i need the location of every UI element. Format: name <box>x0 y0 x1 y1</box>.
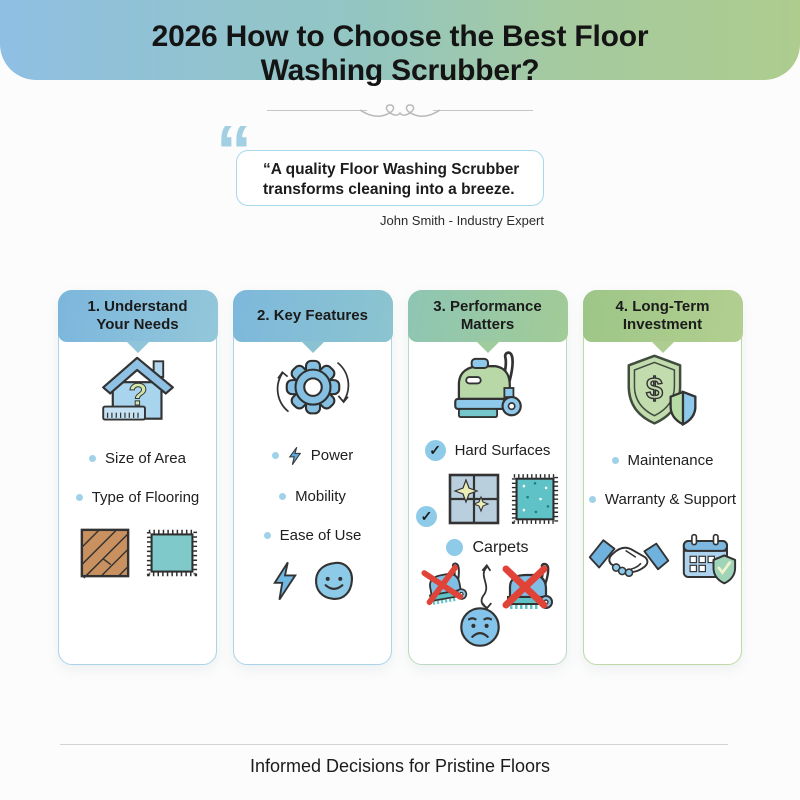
bullet-label: Maintenance <box>628 452 714 469</box>
card3-title-line2: Matters <box>461 316 514 334</box>
check-hard-surfaces: ✓ Hard Surfaces <box>425 440 551 461</box>
card1-title-line2: Your Needs <box>96 316 178 334</box>
card1-body: ? Size of Area Type of Flooring <box>59 342 216 580</box>
quote-line1: “A quality Floor Washing Scrubber <box>263 160 535 180</box>
quote-box: “A quality Floor Washing Scrubber transf… <box>236 150 544 206</box>
calendar-warranty-icon <box>680 532 738 586</box>
carpets-label: Carpets <box>472 539 528 557</box>
smiley-face-icon <box>313 560 355 602</box>
lightning-bolt-small-icon <box>288 446 302 466</box>
bullet-type-of-flooring: Type of Flooring <box>76 489 200 506</box>
bullet-power: Power <box>272 446 354 466</box>
flooring-samples <box>78 526 198 580</box>
card-long-term-investment: 4. Long-Term Investment $ Maintenance <box>583 290 742 665</box>
bullet-dot <box>76 494 83 501</box>
gear-sync-arrows-icon <box>271 352 355 424</box>
bullet-ease-of-use: Ease of Use <box>264 527 362 544</box>
sad-face-wrap <box>458 605 502 654</box>
bullet-dot <box>264 532 271 539</box>
footer-divider <box>60 744 728 745</box>
footer-tagline: Informed Decisions for Pristine Floors <box>0 756 800 777</box>
card1-title-line1: 1. Understand <box>87 298 187 316</box>
divider-line-left <box>267 110 367 111</box>
shield-dollar-icon: $ <box>623 352 703 430</box>
svg-text:?: ? <box>128 376 147 411</box>
bullet-dot <box>279 493 286 500</box>
flourish-ornament-icon <box>358 101 442 127</box>
bullet-size-of-area: Size of Area <box>89 450 186 467</box>
svg-text:$: $ <box>645 371 662 405</box>
card3-title-line1: 3. Performance <box>433 298 541 316</box>
wood-flooring-icon <box>78 526 132 580</box>
divider-line-right <box>433 110 533 111</box>
house-question-ruler-icon: ? <box>98 352 178 428</box>
lightning-bolt-icon <box>271 560 299 602</box>
bullet-dot <box>612 457 619 464</box>
floor-scrubber-machine-icon <box>444 348 532 428</box>
quote-attribution: John Smith - Industry Expert <box>236 213 544 228</box>
page-title-line1: 2026 How to Choose the Best Floor <box>0 20 800 54</box>
quote-line2: transforms cleaning into a breeze. <box>263 180 535 200</box>
card1-header: 1. Understand Your Needs <box>58 290 218 342</box>
circle-bullet-icon <box>446 539 463 556</box>
carpet-swatch-icon <box>511 472 559 526</box>
bullet-mobility: Mobility <box>279 488 346 505</box>
bullet-label: Ease of Use <box>280 527 362 544</box>
carpet-swatch-icon <box>146 528 198 578</box>
card-key-features: 2. Key Features <box>233 290 392 665</box>
card2-title-line1: 2. Key Features <box>257 307 368 325</box>
carpets-label-row: Carpets <box>446 539 528 557</box>
page-title-line2: Washing Scrubber? <box>0 54 800 88</box>
bullet-label: Type of Flooring <box>92 489 200 506</box>
crossed-scrubber-icon <box>498 559 554 613</box>
bullet-dot <box>272 452 279 459</box>
card3-header: 3. Performance Matters <box>408 290 568 342</box>
check-icon: ✓ <box>416 506 437 527</box>
card2-body: Power Mobility Ease of Use <box>234 342 391 602</box>
bullet-label: Power <box>311 447 354 464</box>
card4-body: $ Maintenance Warranty & Support <box>584 342 741 586</box>
sad-face-icon <box>458 605 502 649</box>
bullet-label: Size of Area <box>105 450 186 467</box>
card4-header: 4. Long-Term Investment <box>583 290 743 342</box>
check-icon: ✓ <box>425 440 446 461</box>
card3-body: ✓ Hard Surfaces ✓ <box>409 342 566 654</box>
card2-header: 2. Key Features <box>233 290 393 342</box>
bullet-label: Mobility <box>295 488 346 505</box>
feature-icons <box>271 560 355 602</box>
clean-tile-icon <box>446 471 502 527</box>
handshake-icon <box>588 535 670 583</box>
steps-row: 1. Understand Your Needs ? Size of Area <box>58 290 742 665</box>
card4-title-line1: 4. Long-Term <box>616 298 710 316</box>
hard-surface-samples: ✓ <box>416 471 559 527</box>
card4-title-line2: Investment <box>623 316 702 334</box>
card-understand-your-needs: 1. Understand Your Needs ? Size of Area <box>58 290 217 665</box>
page-title: 2026 How to Choose the Best Floor Washin… <box>0 20 800 88</box>
investment-icons <box>588 532 738 586</box>
bullet-warranty-support: Warranty & Support <box>589 491 736 508</box>
bullet-dot <box>89 455 96 462</box>
bullet-label: Warranty & Support <box>605 491 736 508</box>
card-performance-matters: 3. Performance Matters ✓ Hard Su <box>408 290 567 665</box>
infographic-root: 2026 How to Choose the Best Floor Washin… <box>0 0 800 800</box>
bullet-maintenance: Maintenance <box>612 452 714 469</box>
bullet-dot <box>589 496 596 503</box>
check-label: Hard Surfaces <box>455 442 551 459</box>
